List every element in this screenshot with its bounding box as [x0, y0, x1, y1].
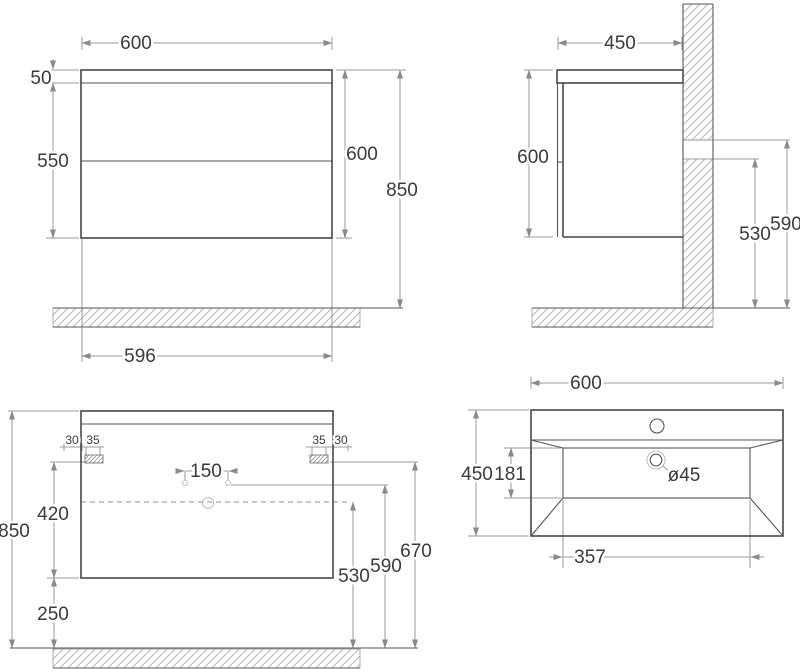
basin-drain-inner	[650, 454, 662, 466]
front-view: 600 50 550 600 850 596	[30, 33, 417, 367]
basin-view: 600 450 181 ø45 357	[461, 373, 783, 568]
dim-label-back-bracket-left: 35	[86, 433, 100, 447]
side-extension-lines	[524, 37, 790, 237]
back-floor-hatch	[53, 649, 360, 668]
dim-label-basin-width: 600	[570, 373, 602, 394]
basin-faucet-hole	[650, 419, 664, 433]
back-siphon-hole	[203, 498, 214, 509]
dim-label-back-total-height: 850	[0, 521, 30, 542]
dim-label-front-base-width: 596	[124, 346, 156, 367]
front-cabinet-outline	[53, 70, 403, 327]
side-floor-hatch	[532, 308, 713, 327]
side-wall-rail-notch	[684, 141, 713, 159]
front-floor-hatch	[53, 308, 360, 327]
dim-label-back-holes-span: 150	[190, 461, 222, 482]
dim-label-front-width: 600	[120, 33, 152, 54]
dim-label-back-bracket-right: 35	[312, 433, 326, 447]
vanity-cabinet-drawing: 600 50 550 600 850 596	[0, 0, 800, 672]
dim-label-side-rail-low: 530	[739, 224, 771, 245]
back-bracket-right	[310, 455, 328, 463]
dim-label-basin-bowl-width: 357	[574, 547, 606, 568]
back-view: 30 35 35 30 150 420 850 250 530 590 670	[0, 411, 432, 668]
back-drain-hole-right	[226, 481, 231, 486]
basin-outline	[531, 410, 783, 536]
dim-label-back-floor-clearance: 250	[37, 604, 69, 625]
dim-label-back-hang-height: 420	[37, 504, 69, 525]
dim-label-front-body-height: 550	[37, 151, 69, 172]
technical-drawing-page: 600 50 550 600 850 596	[0, 0, 800, 672]
dim-label-front-top-thickness: 50	[30, 68, 51, 89]
dim-label-side-depth: 450	[604, 33, 636, 54]
dim-label-side-height: 600	[517, 147, 549, 168]
dim-label-back-holes-height: 590	[370, 556, 402, 577]
dim-label-back-waste-height: 530	[338, 566, 370, 587]
dim-label-basin-bowl-depth: 181	[494, 464, 526, 485]
side-cabinet-outline	[532, 4, 790, 327]
dim-label-front-mount-height: 850	[386, 180, 418, 201]
dim-label-basin-drain-diameter: ø45	[668, 465, 701, 486]
dim-label-back-bracket-height: 670	[400, 541, 432, 562]
back-cabinet-outline	[10, 411, 418, 668]
dim-label-front-cabinet-height: 600	[346, 144, 378, 165]
dim-label-back-edge-right: 30	[334, 433, 348, 447]
back-drain-hole-left	[183, 481, 188, 486]
side-view: 450 600 530 590	[517, 4, 800, 327]
dim-label-basin-depth: 450	[461, 464, 493, 485]
dim-label-back-edge-left: 30	[65, 433, 79, 447]
back-bracket-left	[85, 455, 103, 463]
dim-label-side-rail-high: 590	[770, 214, 800, 235]
